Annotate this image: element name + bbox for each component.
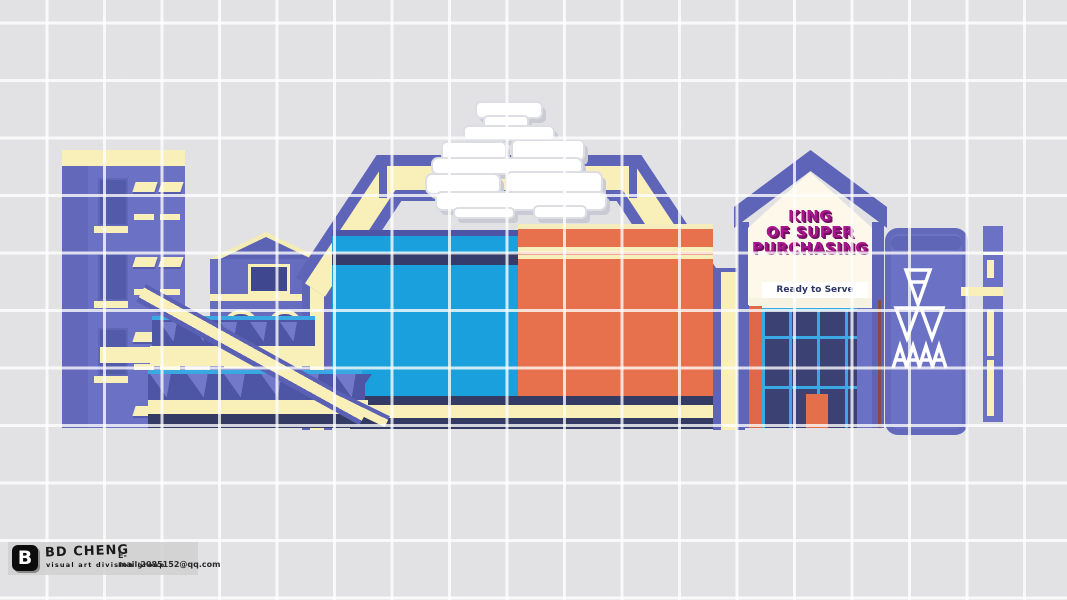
storefront-lintel [749, 298, 872, 308]
billboard-blue-stripe [332, 253, 518, 265]
watermark-email: E-mail:2085152@qq.com [118, 551, 220, 569]
pillar-white-line [983, 252, 1003, 255]
quad-a-triangle-icon [906, 346, 920, 368]
storefront-glass [762, 308, 857, 428]
sign-line-2: OF SUPER [748, 224, 872, 240]
sign-line-1: KING [748, 208, 872, 224]
billboard-orange-stripe [518, 247, 713, 252]
frame-divider [629, 158, 637, 198]
storefront-right-wall [857, 308, 872, 428]
chinese-calligraphy-3d-logo [424, 100, 624, 224]
frame-divider [379, 158, 387, 198]
billboard-orange-stripe [518, 255, 713, 259]
mullion [789, 308, 792, 428]
maroon-seam [878, 300, 881, 428]
quad-a-triangle-icon [919, 346, 933, 368]
ready-to-serve-banner: Ready to Serve [762, 282, 868, 298]
pillar-cross-bar [961, 287, 1003, 296]
pillar-trim [987, 260, 994, 278]
render-canvas: KING OF SUPER PURCHASING Ready to Serve [0, 0, 1067, 600]
far-right-pillar [983, 226, 1003, 422]
pillar-trim [987, 360, 994, 416]
watermark-brand: BD CHENG [45, 543, 130, 561]
entrance-door [806, 394, 828, 428]
down-triangle-icon [921, 308, 943, 338]
billboard-blue-lip [332, 230, 518, 236]
mullion [762, 386, 857, 389]
watermark-logo: B [12, 545, 38, 571]
sign-line-3: PURCHASING [748, 240, 872, 256]
sign-text: KING OF SUPER PURCHASING [748, 208, 872, 256]
mullion [845, 308, 848, 428]
billboard-orange [518, 224, 713, 397]
mullion [762, 308, 765, 428]
hall-base-band [350, 405, 713, 418]
watermark: B BD CHENG visual art division group E-m… [8, 542, 198, 575]
down-triangle-icon [906, 270, 930, 304]
quad-a-triangle-icon [932, 346, 946, 368]
hall-base-band [350, 418, 713, 429]
storefront-orange-pillar [749, 306, 762, 428]
billboard-orange-lip [518, 224, 713, 229]
right-slab-building [885, 228, 968, 435]
storefront [749, 298, 872, 428]
triangle-glyphs [885, 228, 968, 435]
quad-a-triangle-icon [893, 346, 907, 368]
pillar-trim [987, 310, 994, 356]
down-triangle-icon [896, 308, 918, 338]
hall-base-band [350, 396, 713, 405]
mullion [762, 336, 857, 339]
stall-base-shadow [148, 414, 368, 428]
mullion [762, 308, 857, 311]
